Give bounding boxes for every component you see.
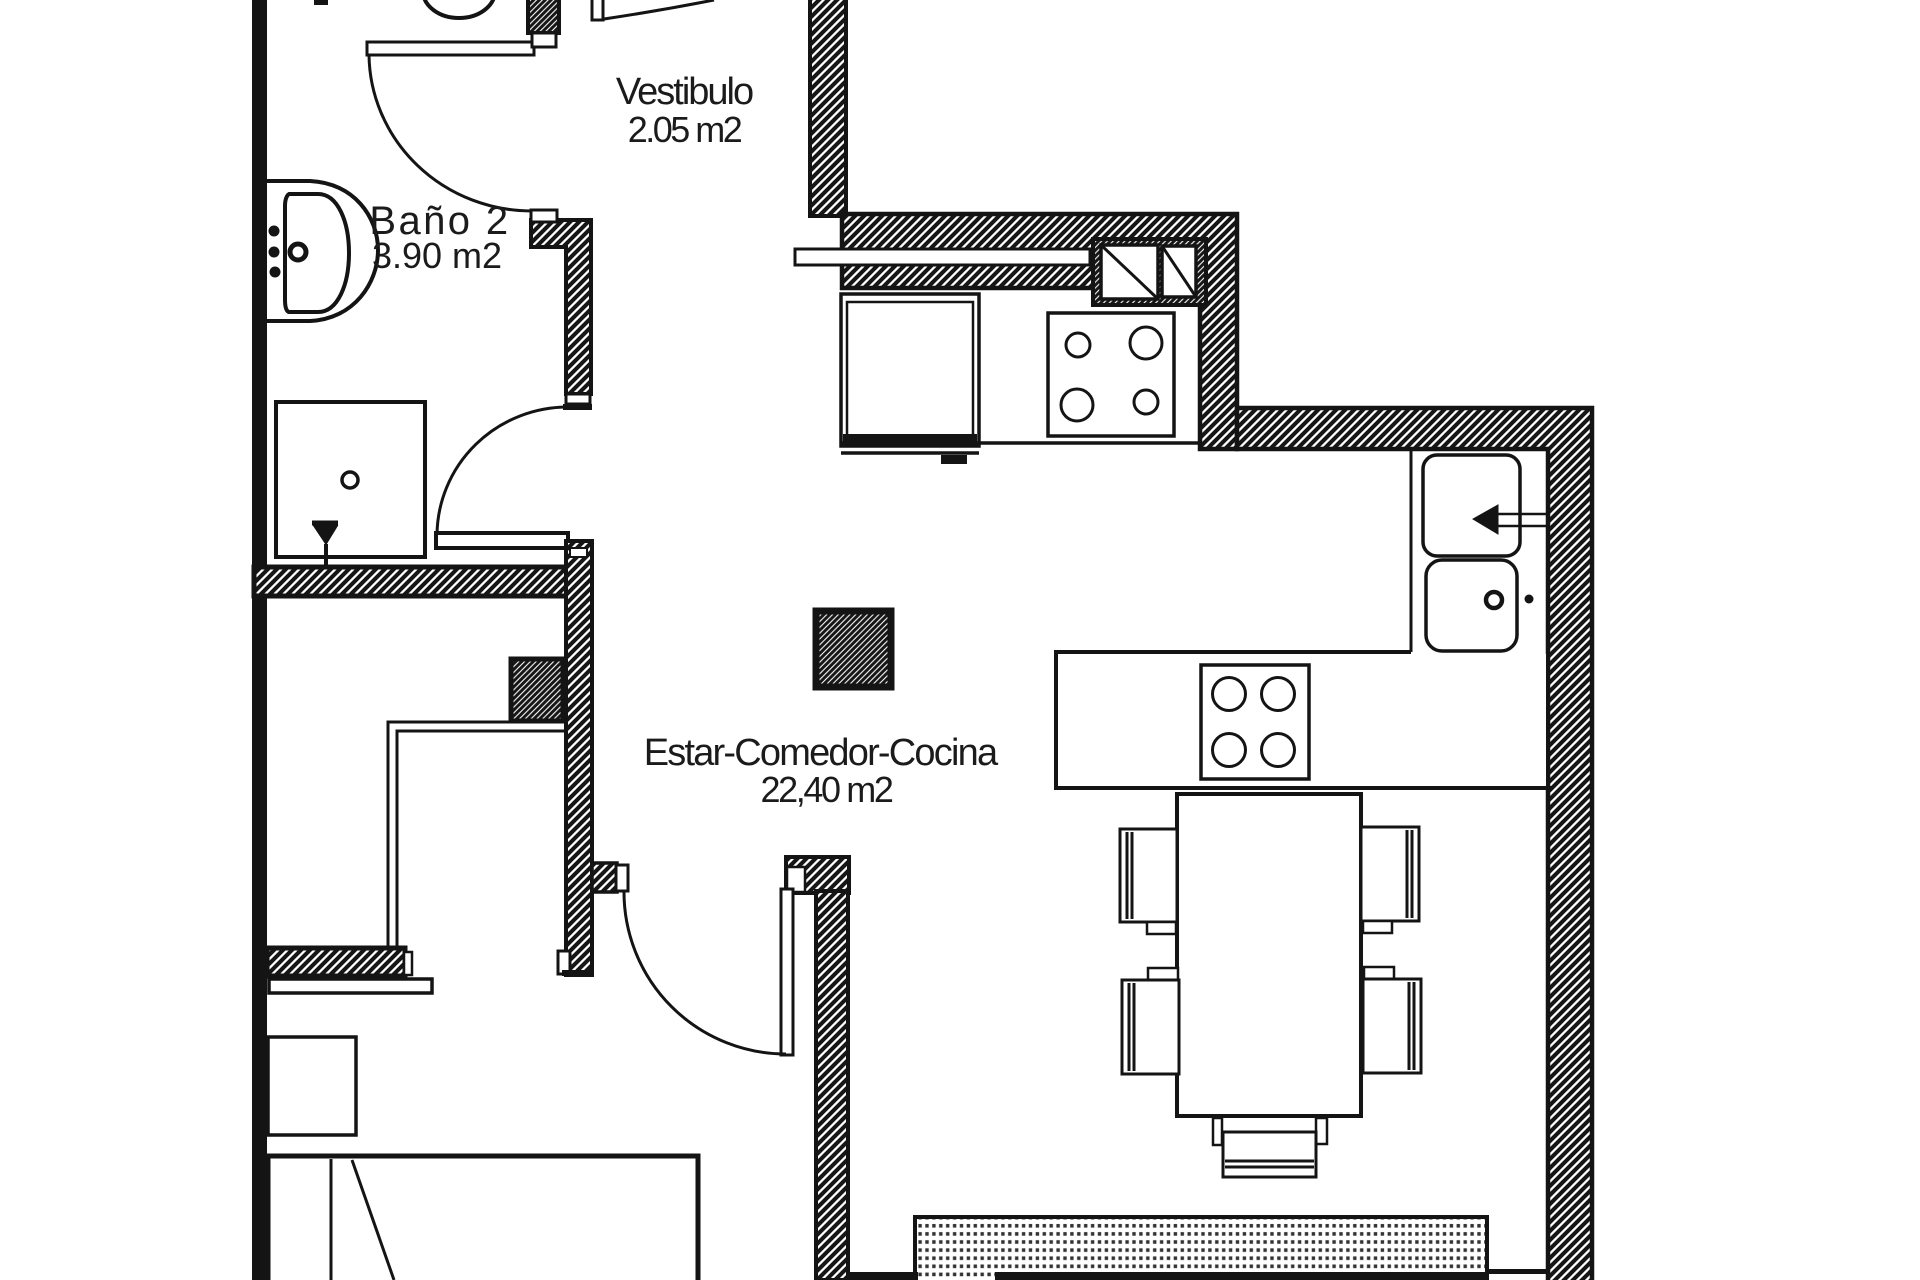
svg-text:3.90 m2: 3.90 m2	[372, 235, 502, 276]
svg-text:22,40 m2: 22,40 m2	[761, 769, 893, 810]
svg-text:Estar-Comedor-Cocina: Estar-Comedor-Cocina	[644, 732, 999, 774]
svg-text:2.05 m2: 2.05 m2	[628, 109, 742, 150]
svg-text:Vestibulo: Vestibulo	[616, 71, 753, 113]
